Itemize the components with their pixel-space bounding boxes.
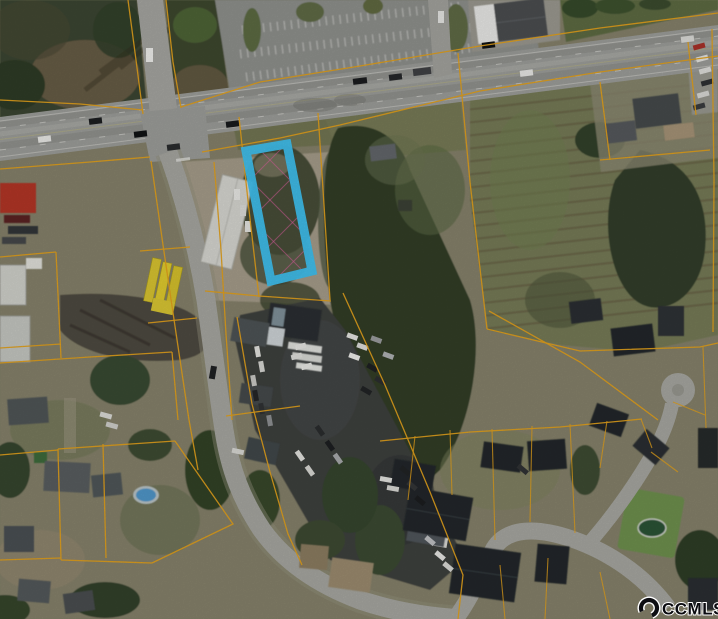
- house: [63, 590, 95, 614]
- swimming-pool: [136, 489, 156, 502]
- house: [527, 439, 567, 472]
- watermark-text: CCMLS: [662, 600, 718, 619]
- house: [299, 544, 329, 570]
- aerial-map: CCMLS: [0, 0, 718, 619]
- house: [91, 472, 123, 497]
- house: [369, 143, 397, 161]
- above-ground-pool: [638, 519, 666, 537]
- house: [449, 544, 521, 603]
- house: [328, 557, 374, 593]
- house: [658, 306, 684, 336]
- house: [4, 526, 34, 552]
- house: [569, 298, 603, 324]
- house: [534, 544, 569, 585]
- house: [605, 120, 637, 144]
- house: [632, 93, 681, 128]
- red-roof-building: [0, 183, 36, 213]
- parking-tree-island: [243, 8, 261, 52]
- aerial-map-canvas: CCMLS: [0, 0, 718, 619]
- house: [698, 428, 718, 468]
- house: [17, 579, 51, 604]
- house: [7, 397, 49, 426]
- house: [610, 324, 655, 357]
- house: [43, 461, 91, 493]
- warehouse: [0, 265, 26, 305]
